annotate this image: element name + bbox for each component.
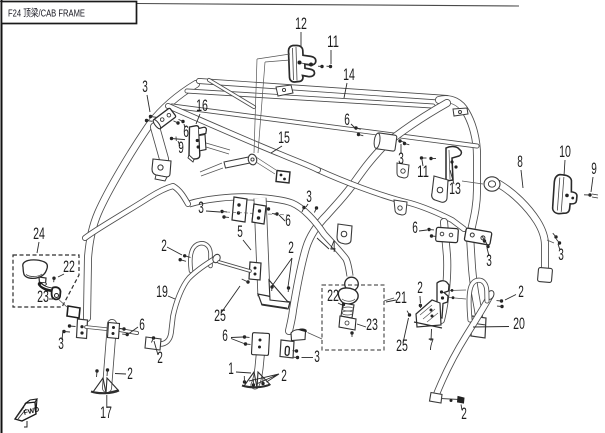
svg-text:7: 7 bbox=[428, 335, 434, 354]
svg-text:25: 25 bbox=[214, 306, 226, 325]
svg-text:8: 8 bbox=[517, 152, 523, 171]
svg-text:3: 3 bbox=[314, 347, 320, 366]
svg-text:25: 25 bbox=[396, 336, 408, 355]
svg-text:23: 23 bbox=[366, 315, 378, 334]
svg-text:24: 24 bbox=[33, 224, 45, 243]
svg-text:23: 23 bbox=[37, 287, 49, 306]
svg-text:2: 2 bbox=[417, 278, 423, 297]
svg-text:1: 1 bbox=[228, 359, 234, 378]
svg-text:2: 2 bbox=[157, 348, 163, 367]
svg-text:3: 3 bbox=[142, 77, 148, 96]
svg-text:15: 15 bbox=[278, 128, 290, 147]
svg-text:16: 16 bbox=[196, 96, 208, 115]
svg-text:3: 3 bbox=[198, 198, 204, 217]
svg-text:6: 6 bbox=[344, 110, 350, 129]
svg-text:6: 6 bbox=[222, 326, 228, 345]
svg-text:5: 5 bbox=[237, 222, 243, 241]
svg-text:6: 6 bbox=[412, 218, 418, 237]
svg-text:3: 3 bbox=[398, 149, 404, 168]
svg-text:3: 3 bbox=[58, 334, 64, 353]
svg-text:22: 22 bbox=[63, 257, 75, 276]
svg-text:22: 22 bbox=[327, 286, 339, 305]
svg-text:9: 9 bbox=[178, 138, 184, 157]
svg-text:3: 3 bbox=[558, 245, 564, 264]
svg-text:6: 6 bbox=[285, 211, 291, 230]
svg-text:2: 2 bbox=[281, 366, 287, 385]
svg-text:4: 4 bbox=[330, 237, 336, 256]
svg-text:17: 17 bbox=[100, 403, 112, 422]
svg-text:20: 20 bbox=[513, 314, 525, 333]
svg-text:11: 11 bbox=[327, 32, 339, 51]
svg-text:13: 13 bbox=[449, 179, 461, 198]
svg-text:3: 3 bbox=[486, 251, 492, 270]
svg-text:3: 3 bbox=[306, 187, 312, 206]
svg-text:2: 2 bbox=[518, 282, 524, 301]
svg-text:14: 14 bbox=[343, 65, 355, 84]
svg-text:F24 顶梁/CAB FRAME: F24 顶梁/CAB FRAME bbox=[8, 7, 85, 20]
svg-text:21: 21 bbox=[395, 288, 407, 307]
svg-text:6: 6 bbox=[139, 315, 145, 334]
svg-text:19: 19 bbox=[156, 282, 168, 301]
svg-text:2: 2 bbox=[127, 364, 133, 383]
svg-text:11: 11 bbox=[417, 162, 429, 181]
svg-text:12: 12 bbox=[295, 14, 307, 33]
svg-text:2: 2 bbox=[461, 404, 467, 423]
svg-text:2: 2 bbox=[288, 238, 294, 257]
svg-text:9: 9 bbox=[591, 159, 597, 178]
svg-text:2: 2 bbox=[161, 236, 167, 255]
svg-text:10: 10 bbox=[559, 142, 571, 161]
svg-text:6: 6 bbox=[183, 122, 189, 141]
